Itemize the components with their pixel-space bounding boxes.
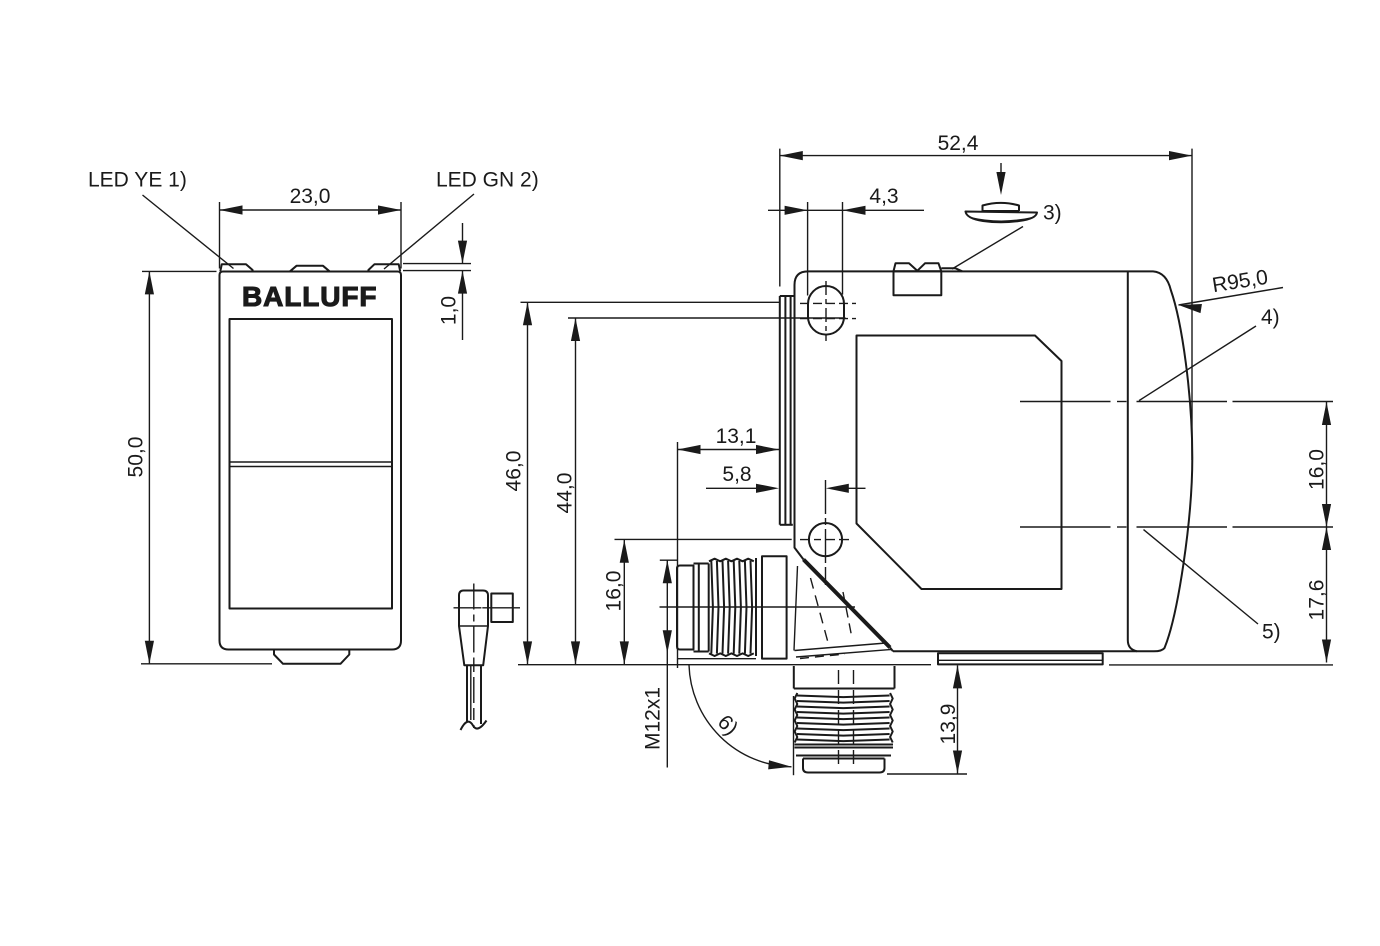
svg-text:1,0: 1,0	[438, 296, 461, 325]
svg-text:BALLUFF: BALLUFF	[242, 281, 376, 312]
svg-text:44,0: 44,0	[554, 473, 577, 514]
svg-text:4,3: 4,3	[869, 185, 898, 208]
svg-text:5,8: 5,8	[722, 463, 751, 486]
svg-text:16,0: 16,0	[603, 571, 626, 612]
svg-text:16,0: 16,0	[1306, 449, 1329, 490]
svg-text:50,0: 50,0	[125, 437, 148, 478]
svg-text:5): 5)	[1262, 621, 1281, 644]
svg-text:3): 3)	[1043, 202, 1062, 225]
svg-text:LED YE 1): LED YE 1)	[88, 169, 187, 192]
svg-text:13,9: 13,9	[937, 704, 960, 745]
svg-text:46,0: 46,0	[503, 451, 526, 492]
svg-text:13,1: 13,1	[716, 425, 757, 448]
svg-text:M12x1: M12x1	[642, 687, 665, 750]
svg-text:4): 4)	[1261, 306, 1280, 329]
svg-text:23,0: 23,0	[290, 185, 331, 208]
svg-text:52,4: 52,4	[938, 132, 979, 155]
svg-text:LED GN 2): LED GN 2)	[436, 169, 539, 192]
svg-text:17,6: 17,6	[1306, 580, 1329, 621]
